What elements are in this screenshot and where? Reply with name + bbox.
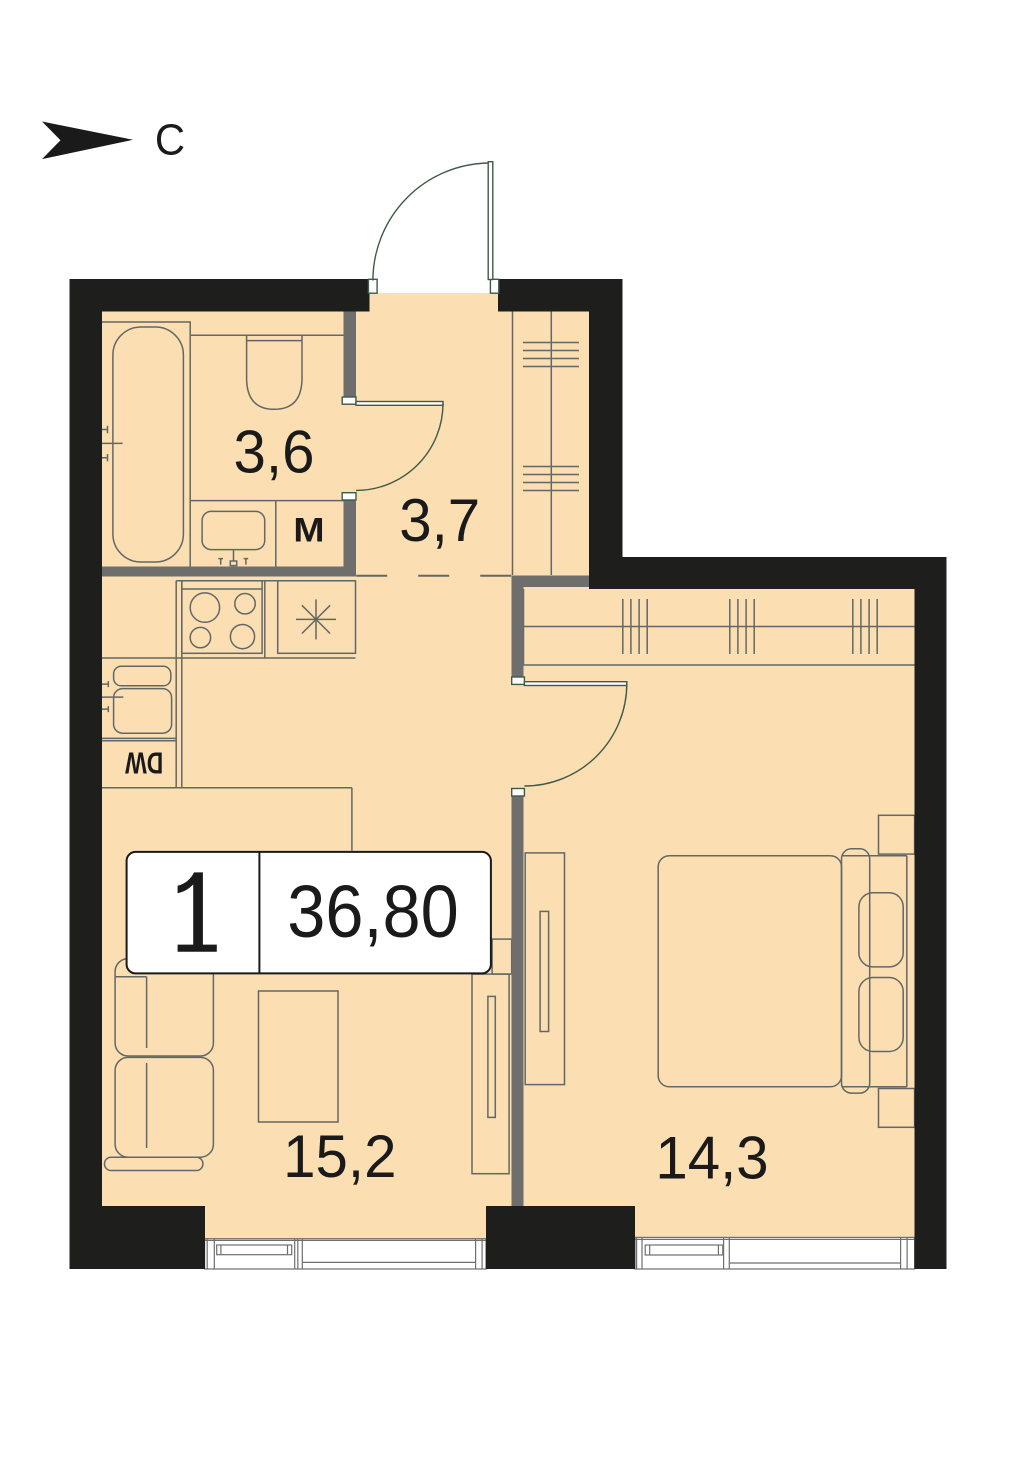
svg-text:36,80: 36,80 (287, 871, 458, 954)
svg-text:DW: DW (125, 746, 163, 781)
svg-text:3,7: 3,7 (399, 486, 480, 554)
svg-text:С: С (155, 116, 185, 165)
svg-text:15,2: 15,2 (283, 1122, 396, 1190)
svg-text:M: M (293, 511, 324, 549)
svg-text:14,3: 14,3 (655, 1124, 768, 1192)
svg-text:3,6: 3,6 (234, 418, 315, 486)
